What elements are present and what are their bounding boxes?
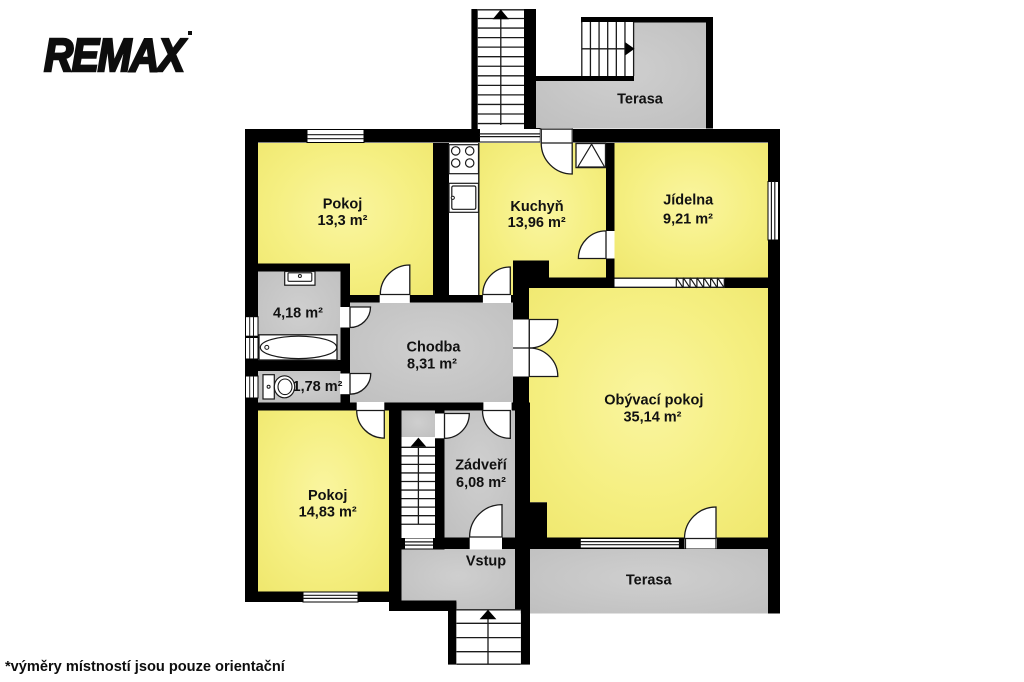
svg-text:4,18 m²: 4,18 m² [273, 306, 323, 322]
svg-text:35,14 m²: 35,14 m² [623, 410, 681, 426]
svg-text:9,21 m²: 9,21 m² [663, 211, 713, 227]
svg-text:6,08 m²: 6,08 m² [456, 475, 506, 491]
svg-text:8,31 m²: 8,31 m² [407, 357, 457, 373]
svg-text:1,78 m²: 1,78 m² [293, 379, 343, 395]
svg-text:Obývací pokoj: Obývací pokoj [604, 392, 703, 408]
svg-text:Terasa: Terasa [626, 573, 673, 589]
svg-text:14,83 m²: 14,83 m² [299, 505, 357, 521]
svg-text:Pokoj: Pokoj [323, 197, 362, 213]
svg-text:Chodba: Chodba [407, 340, 462, 356]
svg-text:Vstup: Vstup [466, 554, 506, 570]
svg-text:Pokoj: Pokoj [308, 488, 347, 504]
svg-text:Zádveří: Zádveří [455, 458, 508, 474]
svg-text:13,3 m²: 13,3 m² [318, 213, 368, 229]
svg-text:13,96 m²: 13,96 m² [508, 215, 566, 231]
svg-text:Terasa: Terasa [617, 92, 664, 108]
svg-text:Kuchyň: Kuchyň [510, 199, 563, 215]
svg-text:Jídelna: Jídelna [663, 193, 714, 209]
